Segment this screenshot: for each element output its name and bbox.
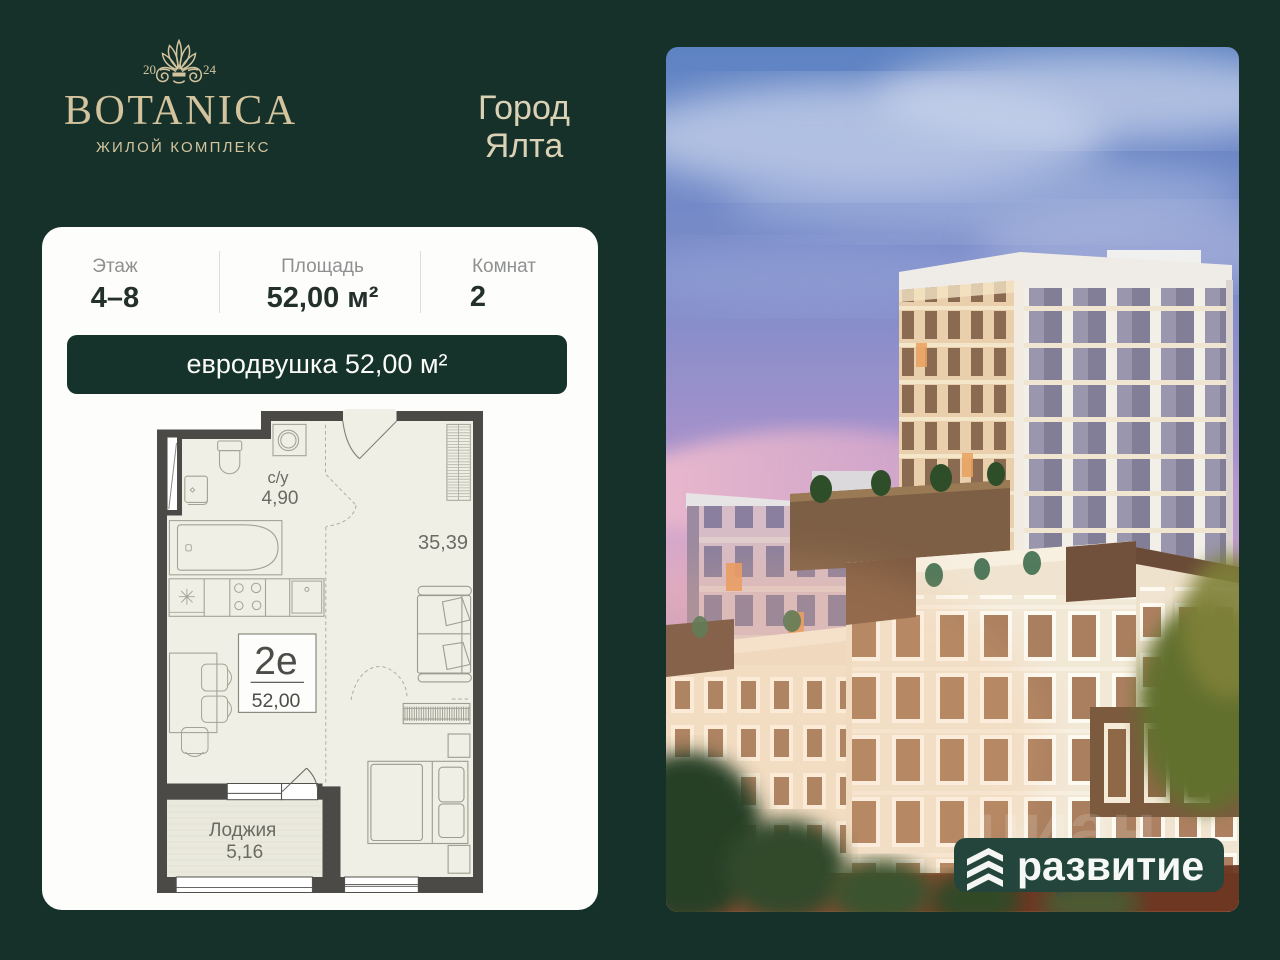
svg-text:5,16: 5,16: [226, 842, 263, 863]
svg-text:52,00: 52,00: [252, 690, 301, 712]
svg-text:4,90: 4,90: [262, 488, 299, 509]
svg-text:развитие: развитие: [1017, 843, 1204, 889]
svg-text:35,39: 35,39: [418, 532, 468, 554]
svg-text:Лоджия: Лоджия: [209, 820, 276, 841]
svg-text:с/у: с/у: [267, 469, 289, 487]
svg-text:2е: 2е: [254, 640, 297, 683]
